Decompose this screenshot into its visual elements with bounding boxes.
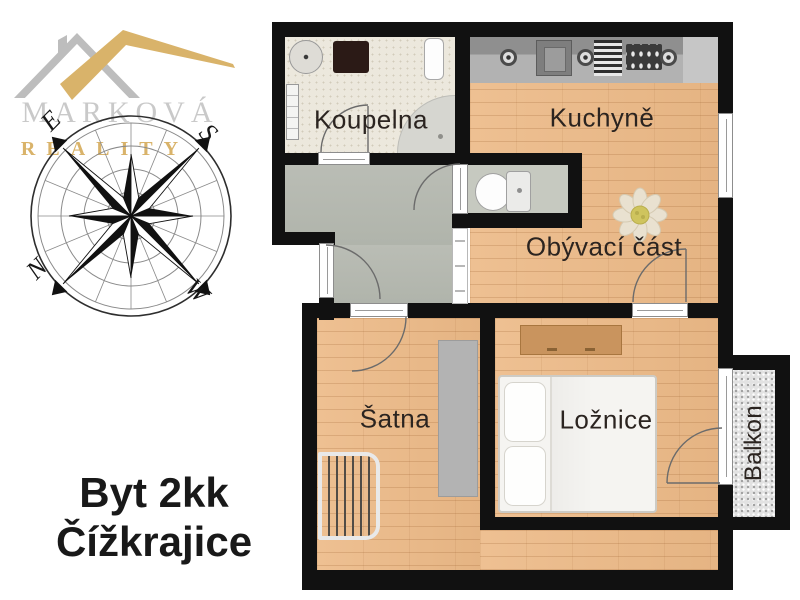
room-label-obyvaci-cast: Obývací část [526,232,682,263]
dressing-room-door-arc [352,317,406,371]
room-label-koupelna: Koupelna [314,105,428,136]
room-label-kuchyne: Kuchyně [550,103,655,134]
balcony-door-arc [667,428,722,483]
room-label-balkon: Balkon [740,405,768,481]
floorplan-page: MARKOVÁ REALITY [0,0,800,600]
wc-door-arc [414,164,460,210]
room-label-loznice: Ložnice [559,405,652,436]
room-label-satna: Šatna [360,404,430,435]
door-arcs-overlay [0,0,800,600]
entrance-door-arc [326,245,380,299]
